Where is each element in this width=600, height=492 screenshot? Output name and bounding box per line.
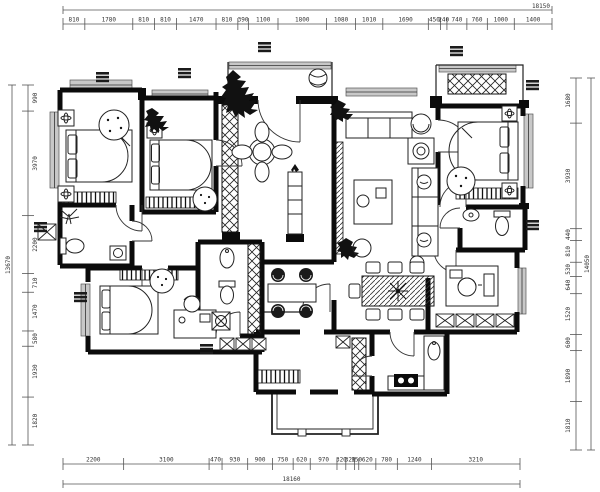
dim-label: 640: [565, 279, 572, 290]
dim-label: 14050: [584, 255, 591, 273]
dimension-stamp: [34, 222, 47, 232]
dim-label: 990: [32, 92, 39, 103]
dim-label: 470: [210, 457, 221, 464]
paper-background: [0, 0, 600, 492]
dim-label: 240: [438, 17, 449, 24]
dim-label: 1470: [189, 17, 204, 24]
dim-label: 1800: [295, 17, 310, 24]
dim-label: 1780: [102, 17, 117, 24]
dim-label: 810: [160, 17, 171, 24]
floor-plan-canvas: 8101780810810147081039011001800108010101…: [0, 0, 600, 492]
dim-label: 1820: [32, 413, 39, 428]
dim-label: 1080: [334, 17, 349, 24]
dim-label: 530: [565, 264, 572, 275]
dim-label: 750: [277, 457, 288, 464]
sink-bathC: [463, 209, 479, 221]
dim-label: 150: [351, 457, 362, 464]
dimension-stamp: [258, 42, 271, 52]
laundry-counter: [258, 370, 300, 383]
cloak-wardrobe-hatch: [448, 74, 506, 94]
toilet-bath-left: [66, 239, 84, 253]
dim-label: 1930: [32, 364, 39, 379]
toilet-bathD: [221, 286, 234, 304]
dim-label: 930: [229, 457, 240, 464]
dim-label: 3930: [565, 168, 572, 183]
dim-label: 810: [68, 17, 79, 24]
dim-label: 1810: [565, 418, 572, 433]
dim-label: 13670: [5, 256, 12, 274]
coffee-table: [354, 180, 392, 224]
dim-label: 1240: [407, 457, 422, 464]
study-furniture: [446, 266, 498, 306]
column-shaft-hatch: [222, 104, 238, 232]
dim-label: 810: [222, 17, 233, 24]
dim-label: 580: [32, 333, 39, 344]
dim-label: 620: [362, 457, 373, 464]
dimension-stamp: [200, 344, 213, 354]
dim-label: 3100: [159, 457, 174, 464]
sink-bathD: [220, 248, 234, 268]
dim-label: 620: [296, 457, 307, 464]
toilet-bathC: [496, 217, 509, 236]
dim-label: 1470: [32, 304, 39, 319]
bath-duct-hatch: [248, 244, 261, 334]
dim-label: 18160: [282, 476, 300, 483]
dimension-stamp: [526, 80, 539, 90]
dim-label: 810: [138, 17, 149, 24]
dim-label: 3210: [469, 457, 484, 464]
dim-label: 710: [32, 277, 39, 288]
dimension-stamp: [74, 292, 87, 302]
dim-label: 900: [255, 457, 266, 464]
entry-cabinet: [288, 164, 302, 234]
dim-label: 1680: [565, 93, 572, 108]
dim-label: 760: [472, 17, 483, 24]
dim-label: 1520: [565, 306, 572, 321]
armchair-living: [411, 114, 431, 134]
stove: [394, 374, 418, 387]
dim-label: 3970: [32, 156, 39, 171]
dim-label: 1000: [494, 17, 509, 24]
porch-ornament: [309, 69, 327, 87]
dim-label: 1100: [256, 17, 271, 24]
dim-label: 1010: [362, 17, 377, 24]
dim-label: 780: [381, 457, 392, 464]
dim-label: 970: [318, 457, 329, 464]
box-dining-corner: [336, 336, 350, 348]
dim-label: 390: [238, 17, 249, 24]
dim-label: 1400: [526, 17, 541, 24]
dim-label: 600: [565, 337, 572, 348]
laundry-duct-hatch: [352, 338, 366, 390]
dim-label: 2200: [86, 457, 101, 464]
tv-wall-band: [336, 142, 343, 254]
dim-label: 810: [565, 246, 572, 257]
closet-boxes-bottom-left: [220, 338, 266, 350]
dim-label: 18150: [532, 3, 550, 10]
side-table-living: [408, 138, 434, 164]
chair-bedroomD: [184, 296, 200, 312]
dim-label: 1890: [565, 368, 572, 383]
dimension-stamp: [96, 72, 109, 82]
floor-plan-page: 8101780810810147081039011001800108010101…: [0, 0, 600, 492]
dim-label: 2200: [32, 237, 39, 252]
dim-label: 740: [451, 17, 462, 24]
dimension-stamp: [450, 46, 463, 56]
dimension-stamp: [178, 68, 191, 78]
dim-label: 1690: [398, 17, 413, 24]
dimension-stamp: [526, 220, 539, 230]
dim-label: 440: [565, 229, 572, 240]
